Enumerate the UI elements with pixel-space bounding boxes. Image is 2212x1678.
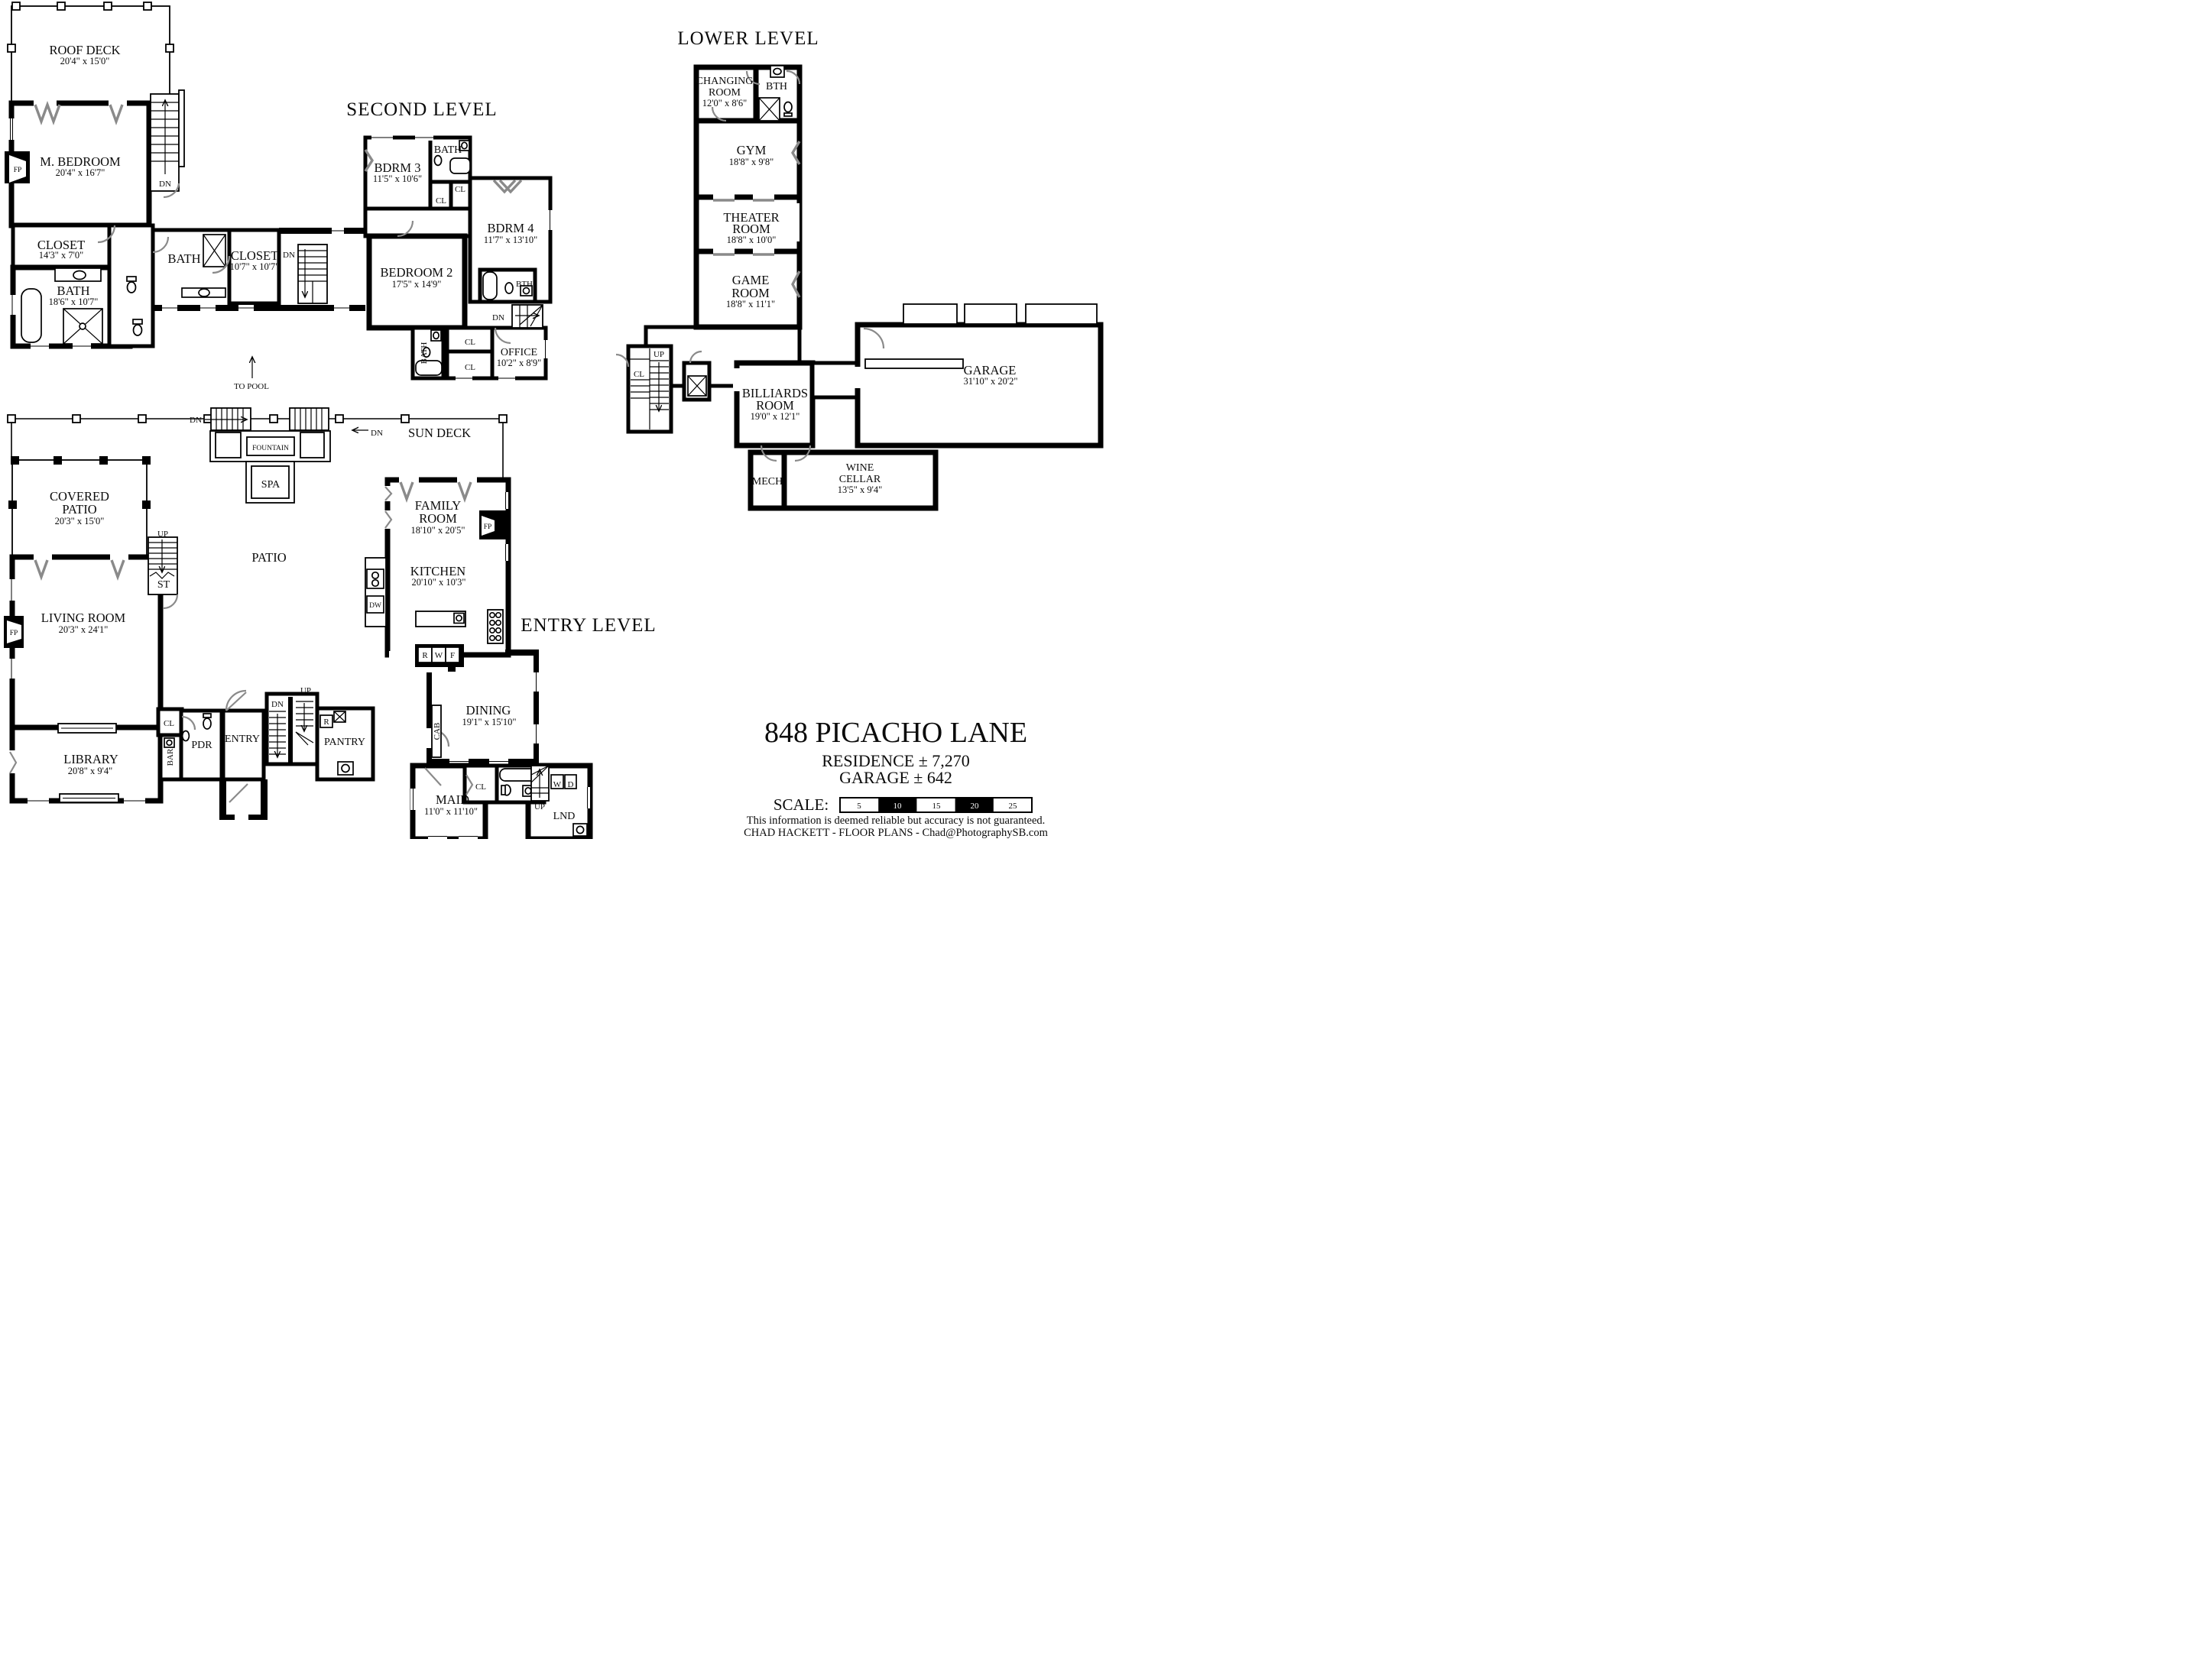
covered-patio-label-2: PATIO [62, 502, 96, 517]
patio-label: PATIO [251, 550, 286, 565]
pantry-label: PANTRY [324, 737, 365, 748]
scale-tick-20: 20 [971, 802, 980, 811]
entry-porch [219, 779, 268, 820]
credit-text: CHAD HACKETT - FLOOR PLANS - Chad@Photog… [744, 827, 1048, 839]
vestibule [812, 363, 858, 397]
garage-door-icon [903, 304, 1097, 324]
w-label: W [435, 651, 443, 660]
maid-dims: 11'0" x 11'10" [424, 806, 478, 817]
wine-label-2: CELLAR [839, 474, 881, 485]
sun-deck-label: SUN DECK [408, 426, 471, 440]
entry-level-title: ENTRY LEVEL [521, 615, 656, 636]
sink-icon [770, 66, 784, 77]
garage-area: GARAGE ± 642 [839, 768, 952, 787]
toilet-icon [505, 283, 513, 293]
cl-label: CL [164, 719, 174, 728]
bth-label: BTH [766, 81, 787, 92]
up-label: UP [534, 802, 545, 811]
up-label: UP [300, 686, 311, 695]
fireplace-icon: FP [5, 151, 30, 183]
toilet-icon [784, 102, 792, 117]
tub-icon [450, 158, 470, 173]
tub-icon [21, 289, 41, 342]
dn-label: DN [492, 313, 504, 322]
stairs-winder-dn [512, 305, 543, 328]
r-label: R [422, 651, 428, 660]
cl-label: CL [436, 196, 446, 206]
scale-tick-5: 5 [857, 802, 861, 811]
d-label: D [568, 780, 574, 789]
bth-label: BTH [516, 280, 533, 289]
shower-icon [203, 235, 225, 267]
maid-label: MAID [436, 792, 469, 807]
title-block: 848 PICACHO LANE RESIDENCE ± 7,270 GARAG… [744, 717, 1048, 839]
toilet-icon [127, 277, 136, 293]
fireplace-icon: FP [479, 510, 508, 539]
scale-label: SCALE: [774, 795, 829, 814]
dining-label: DINING [466, 703, 511, 718]
closet-hall-dims: 10'7" x 10'7" [230, 261, 280, 272]
cl-label: CL [465, 363, 475, 372]
fp-label: FP [14, 167, 22, 174]
washer-icon: W [551, 775, 563, 789]
toilet-icon [203, 714, 211, 729]
fireplace-icon: FP [4, 616, 24, 648]
cooktop-icon [488, 610, 503, 643]
stairs-lower-up: UP CL [616, 346, 671, 432]
office-dims: 10'2" x 8'9" [497, 358, 541, 368]
refrigerator-icon: R [320, 715, 332, 727]
dn-label: DN [159, 180, 171, 189]
scale-tick-25: 25 [1009, 802, 1018, 811]
m-bedroom-dims: 20'4" x 16'7" [56, 167, 105, 178]
sink-icon [183, 731, 190, 741]
library-dims: 20'8" x 9'4" [68, 766, 112, 776]
garage-counter [865, 359, 963, 368]
f-label: F [450, 651, 455, 660]
gym-label: GYM [737, 143, 767, 157]
scale-tick-10: 10 [894, 802, 903, 811]
bdrm3-dims: 11'5" x 10'6" [373, 173, 422, 184]
mech-label: MECH [752, 476, 783, 488]
kitchen-island [416, 611, 465, 627]
wine-dims: 13'5" x 9'4" [838, 484, 882, 495]
cab-label: CAB [433, 723, 442, 740]
fountain-label: FOUNTAIN [252, 445, 289, 452]
cl-label: CL [455, 185, 465, 194]
r-label: R [323, 718, 329, 727]
dw-label: DW [369, 602, 381, 610]
entry-level-plan: DN FP [4, 408, 657, 839]
disclaimer-text: This information is deemed reliable but … [747, 815, 1046, 827]
sink-icon [573, 824, 587, 836]
address-title: 848 PICACHO LANE [764, 717, 1027, 749]
to-pool-label: TO POOL [234, 382, 269, 391]
bdrm4-dims: 11'7" x 13'10" [484, 235, 538, 245]
family-room-dims: 18'10" x 20'5" [411, 525, 465, 536]
changing-label-1: CHANGING [696, 76, 754, 87]
living-room-label: LIVING ROOM [41, 611, 126, 625]
wine-label-1: WINE [846, 462, 874, 474]
floor-plan-canvas: FP DN DN [0, 0, 1106, 839]
kitchen-counter [365, 558, 386, 627]
stairs-patio-dn: DN [190, 408, 251, 430]
bath-hall-label: BATH [167, 251, 200, 266]
entry-room [223, 711, 264, 779]
shower-icon [759, 98, 780, 121]
bath-bed2-label: BATH [420, 342, 429, 364]
entry-label: ENTRY [225, 734, 260, 745]
theater-screen [795, 203, 799, 241]
sink-icon [338, 762, 353, 775]
dn-label: DN [371, 429, 383, 438]
sink-icon [431, 330, 441, 341]
roof-deck-dims: 20'4" x 15'0" [60, 56, 110, 66]
tub-icon [483, 272, 497, 300]
vanity-sink-icon [55, 268, 101, 281]
floor-plan-sheet: FP DN DN [0, 0, 1106, 839]
spa-label: SPA [261, 479, 281, 491]
up-label: UP [654, 350, 664, 359]
scale-bar: 5 10 15 20 25 [840, 798, 1032, 812]
bath-master-dims: 18'6" x 10'7" [49, 296, 99, 307]
bdrm4-label: BDRM 4 [488, 221, 534, 235]
closet-master-dims: 14'3" x 7'0" [39, 250, 83, 261]
cabinet-icon: CAB [432, 705, 442, 757]
living-room-dims: 20'3" x 24'1" [59, 624, 109, 635]
cl-label: CL [475, 782, 486, 792]
dumbwaiter-icon [334, 711, 345, 722]
bedroom2-label: BEDROOM 2 [381, 265, 453, 280]
toilet-icon [133, 319, 142, 335]
dn-label: DN [271, 700, 284, 709]
cl-label: CL [465, 338, 475, 347]
dn-label: DN [190, 416, 202, 425]
w-label: W [553, 780, 562, 789]
bar-label: BAR [166, 748, 175, 766]
kitchen-dims: 20'10" x 10'3" [412, 577, 466, 588]
bath3-label: BATH [434, 144, 462, 156]
appliance-rwf: R W F [415, 644, 464, 672]
gym-dims: 18'8" x 9'8" [729, 157, 774, 167]
dining-dims: 19'1" x 15'10" [462, 717, 517, 727]
lower-level-plan: UP CL LOWER LEVEL CHANGING ROOM 12'0" x … [616, 28, 1101, 508]
changing-label-2: ROOM [709, 87, 741, 99]
pdr-label: PDR [191, 740, 212, 751]
up-label: UP [157, 530, 168, 539]
bedroom2-dims: 17'5" x 14'9" [392, 279, 442, 290]
fp-label: FP [484, 523, 492, 531]
shower-icon [63, 309, 102, 344]
stairs-patio [290, 408, 329, 430]
garage-dims: 31'10" x 20'2" [964, 376, 1018, 387]
toilet-icon [501, 785, 511, 795]
scale-tick-15: 15 [932, 802, 942, 811]
stairs-mid-dn: DN [283, 245, 327, 303]
lower-level-title: LOWER LEVEL [677, 28, 819, 49]
dn-label: DN [283, 251, 295, 260]
toilet-icon [434, 156, 441, 166]
living-room [12, 557, 161, 727]
dryer-icon: D [565, 775, 576, 789]
theater-dims: 18'8" x 10'0" [727, 235, 777, 245]
lnd-label: LND [553, 811, 576, 822]
vanity-sink-icon [182, 288, 225, 297]
stairs-second-dn: DN [151, 90, 184, 197]
changing-dims: 12'0" x 8'6" [702, 98, 747, 109]
covered-patio-dims: 20'3" x 15'0" [55, 516, 105, 526]
hall-room [365, 209, 470, 236]
billiards-dims: 19'0" x 12'1" [751, 411, 800, 422]
fp-label: FP [10, 630, 18, 637]
library-label: LIBRARY [63, 752, 118, 766]
st-label: ST [157, 579, 170, 591]
cl-label: CL [634, 370, 644, 379]
family-room-label-2: ROOM [419, 511, 457, 526]
second-level-plan: FP DN DN [5, 2, 553, 391]
office-label: OFFICE [501, 347, 537, 358]
game-dims: 18'8" x 11'1" [726, 299, 775, 309]
second-level-title: SECOND LEVEL [346, 99, 497, 120]
